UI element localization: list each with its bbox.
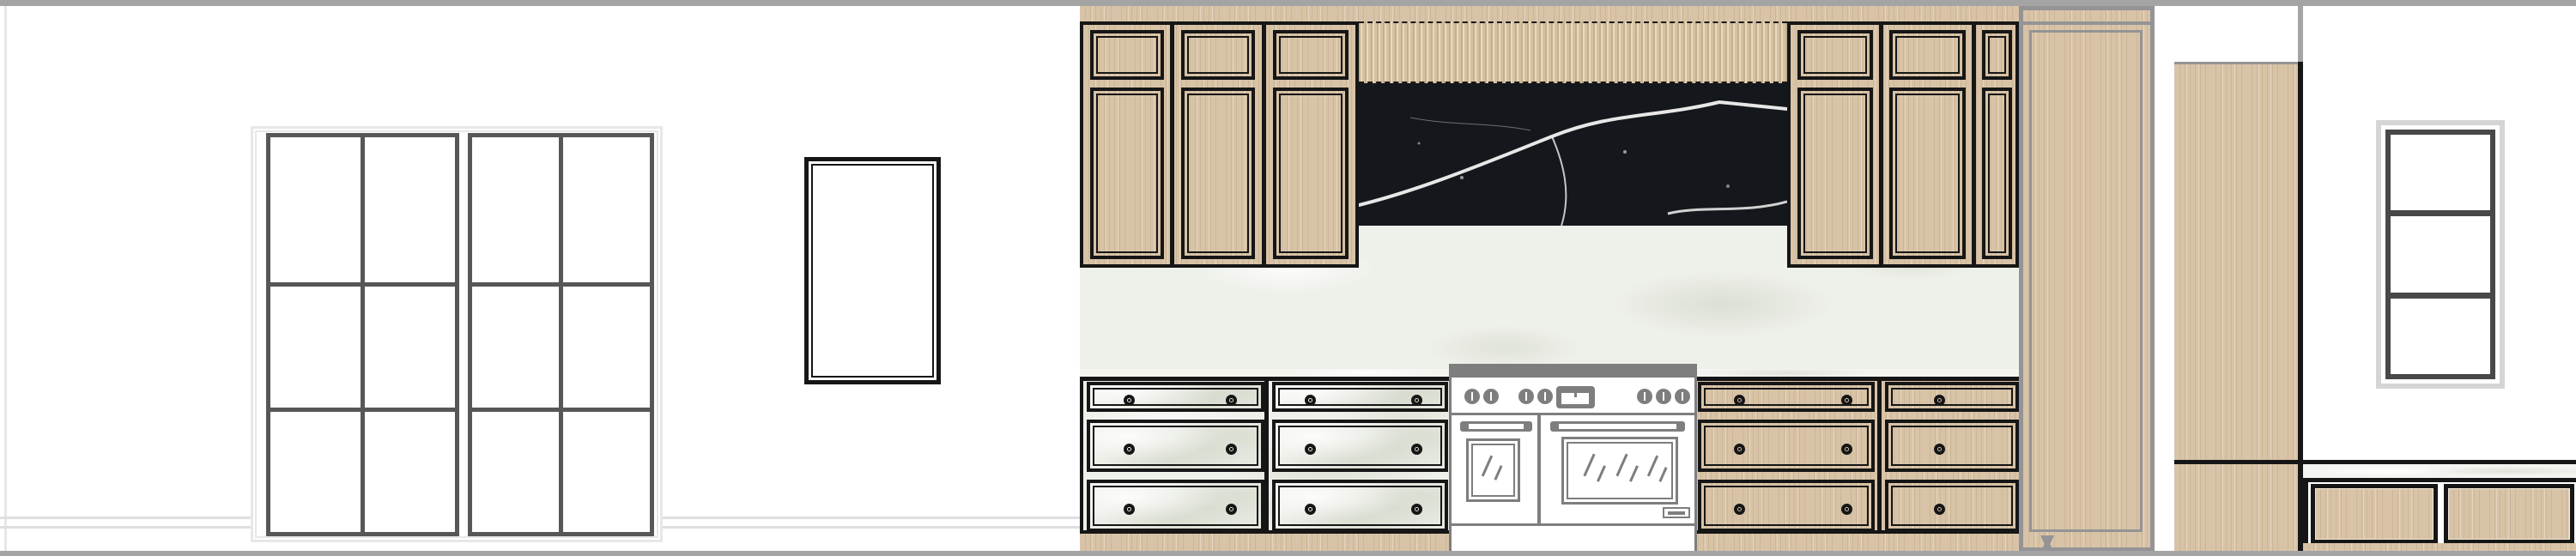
range-control-divider	[1452, 413, 1694, 415]
tall-oak-panel	[2019, 6, 2155, 552]
cabinet-stile	[1972, 25, 1976, 264]
oven-handle-cap	[1524, 424, 1530, 429]
upper-cabinet-left	[1080, 21, 1359, 268]
drawer-oak	[1885, 480, 2019, 532]
drawer-marble	[1087, 480, 1264, 532]
range-vent-slot	[1668, 511, 1685, 515]
drawer-knob	[1411, 444, 1422, 455]
cabinet-stile	[1262, 25, 1266, 264]
drawer-knob	[1934, 504, 1945, 515]
cabinet-stile	[1264, 381, 1269, 532]
door-pane	[365, 287, 455, 408]
window-pane	[2391, 299, 2490, 374]
drawer-marble	[1272, 382, 1448, 412]
range-knob	[1483, 389, 1499, 404]
door-pane	[563, 412, 650, 532]
upper-door-tall-panel	[1982, 88, 2012, 259]
upper-door-top-panel	[1181, 30, 1255, 80]
upper-cabinet-right	[1787, 21, 2019, 268]
drawer-knob	[1411, 395, 1422, 406]
drawer-marble	[1272, 420, 1448, 472]
door-pane	[472, 412, 559, 532]
tall-panel-foot	[2040, 535, 2054, 553]
framed-wall-opening-inner-line	[811, 164, 934, 378]
oven-handle	[1550, 421, 1685, 432]
bench-toe-kick	[2303, 543, 2576, 551]
drawer-knob	[1305, 444, 1316, 455]
drawer-marble	[1087, 382, 1264, 412]
framed-wall-opening	[804, 157, 941, 384]
range-bottom-line	[1452, 523, 1694, 526]
drawer-oak	[1885, 382, 2019, 412]
base-cabinet-right	[1695, 379, 2023, 534]
upper-door-top-panel	[1797, 30, 1873, 80]
door-pane	[270, 287, 361, 408]
door-pane	[270, 137, 361, 282]
bench-panel	[2311, 484, 2438, 544]
bench-front	[2303, 478, 2576, 543]
fluted-slat-panel	[1359, 21, 1787, 83]
door-pane	[365, 137, 455, 282]
door-pane	[472, 287, 559, 408]
drawer-knob	[1934, 395, 1945, 406]
tall-panel-inner-line	[2029, 30, 2143, 532]
drawer-knob	[1734, 444, 1745, 455]
cabinet-stile	[1879, 25, 1883, 264]
black-marble-backsplash	[1359, 83, 1787, 226]
oven-handle-cap	[1553, 424, 1559, 429]
soffit-strip	[1080, 6, 2155, 21]
upper-door-top-panel	[1273, 30, 1349, 80]
drawer-knob	[1734, 395, 1745, 406]
range-knob	[1537, 389, 1553, 404]
drawer-knob	[1124, 504, 1135, 515]
range-knob	[1656, 389, 1671, 404]
range-backguard	[1452, 366, 1694, 378]
drawer-knob	[1841, 395, 1852, 406]
drawing-bottom-border	[0, 551, 2576, 556]
oven-handle-cap	[1463, 424, 1469, 429]
marble-vein-art	[1359, 83, 1787, 226]
drawer-knob	[1226, 504, 1237, 515]
upper-door-top-panel	[1889, 30, 1966, 80]
tall-panel-top-rail-line	[2023, 21, 2150, 25]
french-door-right-leaf	[468, 133, 654, 536]
range-display	[1556, 386, 1595, 408]
drawer-knob	[1124, 444, 1135, 455]
drawer-knob	[1734, 504, 1745, 515]
cabinet-stile	[1170, 25, 1174, 264]
bench-marble-top	[2303, 464, 2576, 478]
end-panel	[2174, 62, 2298, 551]
oven-handle-cap	[1676, 424, 1682, 429]
drawer-knob	[1305, 395, 1316, 406]
oven-window	[1561, 437, 1678, 505]
drawer-knob	[1841, 504, 1852, 515]
drawer-marble	[1272, 480, 1448, 532]
range	[1449, 364, 1697, 553]
drawer-oak	[1698, 382, 1875, 412]
base-cabinet-left	[1080, 379, 1449, 534]
upper-door-tall-panel	[1273, 88, 1349, 259]
drawer-oak	[1698, 480, 1875, 532]
drawer-knob	[1305, 504, 1316, 515]
range-knob	[1464, 389, 1480, 404]
range-knob	[1518, 389, 1534, 404]
upper-door-tall-panel	[1889, 88, 1966, 259]
drawer-knob	[1934, 444, 1945, 455]
door-pane	[472, 137, 559, 282]
upper-door-tall-panel	[1181, 88, 1255, 259]
upper-door-tall-panel	[1797, 88, 1873, 259]
upper-door-tall-panel	[1090, 88, 1164, 259]
drawer-oak	[1698, 420, 1875, 472]
oven-window-inner	[1471, 444, 1515, 497]
drawer-oak	[1885, 420, 2019, 472]
drawer-knob	[1411, 504, 1422, 515]
cabinet-stile	[1877, 381, 1882, 532]
drawer-knob	[1841, 444, 1852, 455]
range-knob	[1637, 389, 1652, 404]
french-door-left-leaf	[266, 133, 459, 536]
range-display-tick	[1574, 393, 1577, 397]
elevation-canvas	[0, 0, 2576, 556]
drawer-knob	[1226, 395, 1237, 406]
upper-door-top-panel	[1090, 30, 1164, 80]
window-pane	[2391, 135, 2490, 210]
oven-window	[1466, 438, 1520, 502]
range-center-divider	[1537, 415, 1541, 526]
window-sash	[2385, 130, 2495, 379]
door-pane	[270, 412, 361, 532]
range-knob	[1675, 389, 1690, 404]
door-pane	[365, 412, 455, 532]
oven-handle	[1460, 421, 1532, 432]
bench-panel	[2444, 484, 2574, 544]
window-casing	[2376, 120, 2505, 389]
left-wall-edge-line	[4, 6, 7, 551]
window-pane	[2391, 216, 2490, 292]
drawer-knob	[1226, 444, 1237, 455]
upper-door-top-panel	[1982, 30, 2012, 80]
door-pane	[563, 287, 650, 408]
drawer-knob	[1124, 395, 1135, 406]
door-pane	[563, 137, 650, 282]
drawing-top-border	[0, 0, 2576, 6]
range-vent	[1663, 507, 1690, 518]
drawer-marble	[1087, 420, 1264, 472]
